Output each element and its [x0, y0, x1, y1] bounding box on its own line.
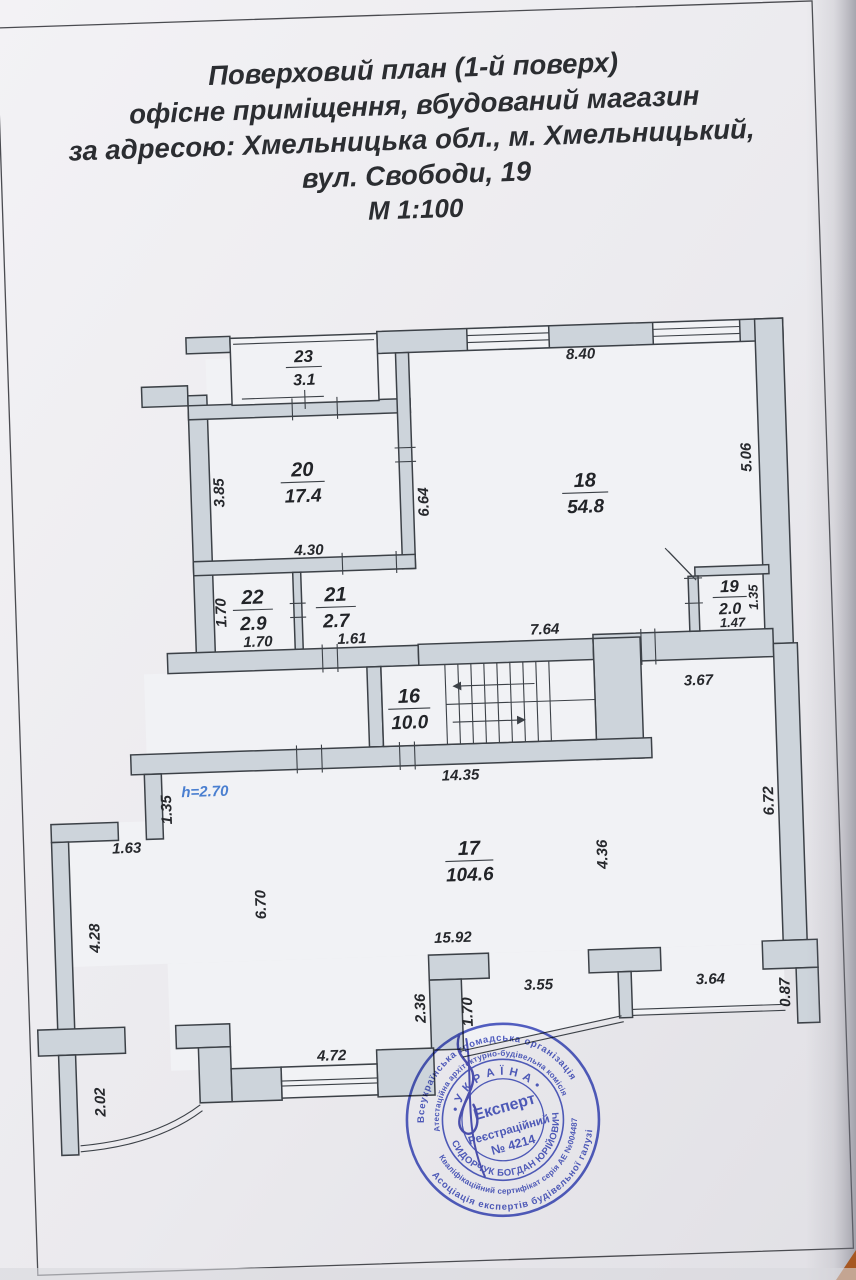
dim-opening-left: 3.55 [524, 976, 554, 994]
room-19-number: 19 [720, 577, 740, 597]
room-16-number: 16 [397, 685, 421, 708]
dim-room22-bottom: 1.70 [243, 633, 273, 651]
dim-room17-step: 1.63 [112, 840, 142, 858]
dim-room22-left: 1.70 [212, 597, 230, 627]
dim-room18-bottom: 7.64 [530, 621, 560, 639]
room-20-number: 20 [290, 459, 314, 482]
dim-wall-bottom-left: 2.02 [92, 1087, 110, 1118]
dim-room19-right: 1.35 [745, 584, 761, 611]
room-23-number: 23 [293, 347, 314, 367]
room-23-area: 3.1 [293, 372, 316, 390]
room-17-number: 17 [457, 837, 481, 860]
dim-room17-mid-left: 6.70 [252, 889, 270, 919]
dim-pier-left: 2.36 [412, 993, 430, 1024]
dim-room19-bottom: 1.47 [720, 614, 747, 630]
floor-plan-sheet: Поверховий план (1-й поверх) офісне прим… [0, 0, 856, 1280]
room-18-number: 18 [573, 469, 597, 492]
dim-pier-right: 0.87 [776, 977, 794, 1007]
dim-window-bottom-left: 4.72 [316, 1047, 347, 1065]
dim-room17-width: 15.92 [434, 929, 473, 947]
dim-room17-left: 4.28 [86, 923, 104, 954]
dim-room17-right: 6.72 [760, 785, 778, 815]
room-22-number: 22 [240, 586, 264, 609]
room-21-area: 2.7 [322, 611, 352, 633]
page-right-edge-shadow [806, 0, 856, 1280]
dim-room20-bottom: 4.30 [293, 541, 324, 559]
dim-room21-bottom: 1.61 [337, 630, 367, 648]
dim-corridor-bottom: 14.35 [441, 766, 480, 784]
title-line-5-scale: М 1:100 [368, 193, 465, 226]
page-bottom-edge [0, 1268, 856, 1280]
dim-room17-notch: 1.35 [158, 794, 176, 824]
room-17-area: 104.6 [446, 864, 495, 887]
dim-passage-right: 3.67 [684, 672, 714, 690]
dim-room18-right: 5.06 [738, 442, 756, 472]
room-22-area: 2.9 [239, 613, 268, 635]
dim-room18-top-width: 8.40 [566, 345, 596, 363]
dim-room18-left: 6.64 [415, 487, 433, 517]
room-18-area: 54.8 [567, 496, 605, 518]
room-21-number: 21 [323, 584, 347, 607]
room-16-area: 10.0 [391, 712, 429, 734]
scanned-floor-plan-page: Поверховий план (1-й поверх) офісне прим… [0, 0, 856, 1280]
dim-pier-gap: 1.70 [459, 996, 477, 1026]
ceiling-height-note: h=2.70 [181, 783, 229, 802]
room-20-area: 17.4 [284, 485, 322, 507]
dim-room17-mid-right: 4.36 [594, 839, 612, 870]
dim-opening-right: 3.64 [696, 970, 726, 988]
dim-room20-left: 3.85 [211, 477, 229, 507]
